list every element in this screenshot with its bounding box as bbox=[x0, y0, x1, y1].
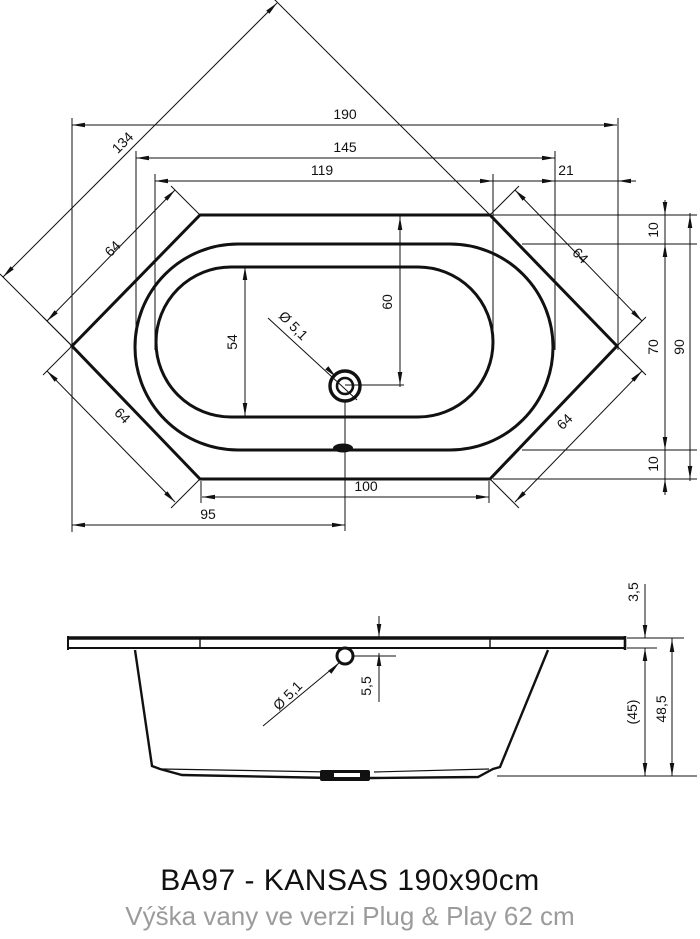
dim-label-drain-depth: 5,5 bbox=[358, 676, 374, 696]
dim-label-overall-width: 90 bbox=[671, 339, 687, 355]
side-view-contours bbox=[67, 636, 626, 781]
drain-inner-circle bbox=[337, 378, 353, 394]
dim-label-inner-width: 70 bbox=[645, 339, 661, 355]
dim-label-drain-from-top: 60 bbox=[379, 294, 395, 310]
dim-label-drain-diameter-top: Ø 5,1 bbox=[276, 308, 312, 344]
dim-label-corner-edge-tl: 64 bbox=[101, 237, 123, 259]
dim-label-bottom-edge: 100 bbox=[354, 478, 378, 494]
dim-label-basin-width: 54 bbox=[224, 334, 240, 350]
dim-label-total-height: 48,5 bbox=[653, 695, 669, 722]
bathtub-dimension-drawing: 190 145 119 21 100 95 10 70 10 90 60 54 … bbox=[0, 0, 700, 939]
dim-label-diagonal-width: 134 bbox=[109, 128, 137, 156]
waste-fitting-slot bbox=[334, 773, 360, 777]
dim-label-rim-offset-top: 10 bbox=[645, 222, 661, 238]
tub-basin-edge bbox=[156, 267, 493, 417]
dim-label-corner-edge-br: 64 bbox=[553, 410, 575, 432]
overflow-marker bbox=[333, 444, 353, 453]
dim-label-end-gap: 21 bbox=[558, 162, 574, 178]
side-body-outline bbox=[135, 650, 548, 778]
technical-drawing-page: 190 145 119 21 100 95 10 70 10 90 60 54 … bbox=[0, 0, 700, 939]
drawing-subtitle: Výška vany ve verzi Plug & Play 62 cm bbox=[125, 901, 574, 931]
dim-label-rim-inner-length: 145 bbox=[333, 139, 357, 155]
dim-label-basin-length: 119 bbox=[311, 162, 334, 178]
dim-label-overall-length: 190 bbox=[333, 106, 357, 122]
dim-label-rim-thickness: 3,5 bbox=[625, 582, 641, 602]
drawing-title: BA97 - KANSAS 190x90cm bbox=[160, 864, 540, 897]
dim-label-rim-offset-bottom: 10 bbox=[645, 456, 661, 472]
dim-label-drain-from-left: 95 bbox=[200, 506, 216, 522]
side-drain-circle bbox=[337, 648, 353, 664]
dim-label-corner-edge-tr: 64 bbox=[569, 244, 591, 266]
dim-label-body-height: (45) bbox=[624, 700, 640, 725]
